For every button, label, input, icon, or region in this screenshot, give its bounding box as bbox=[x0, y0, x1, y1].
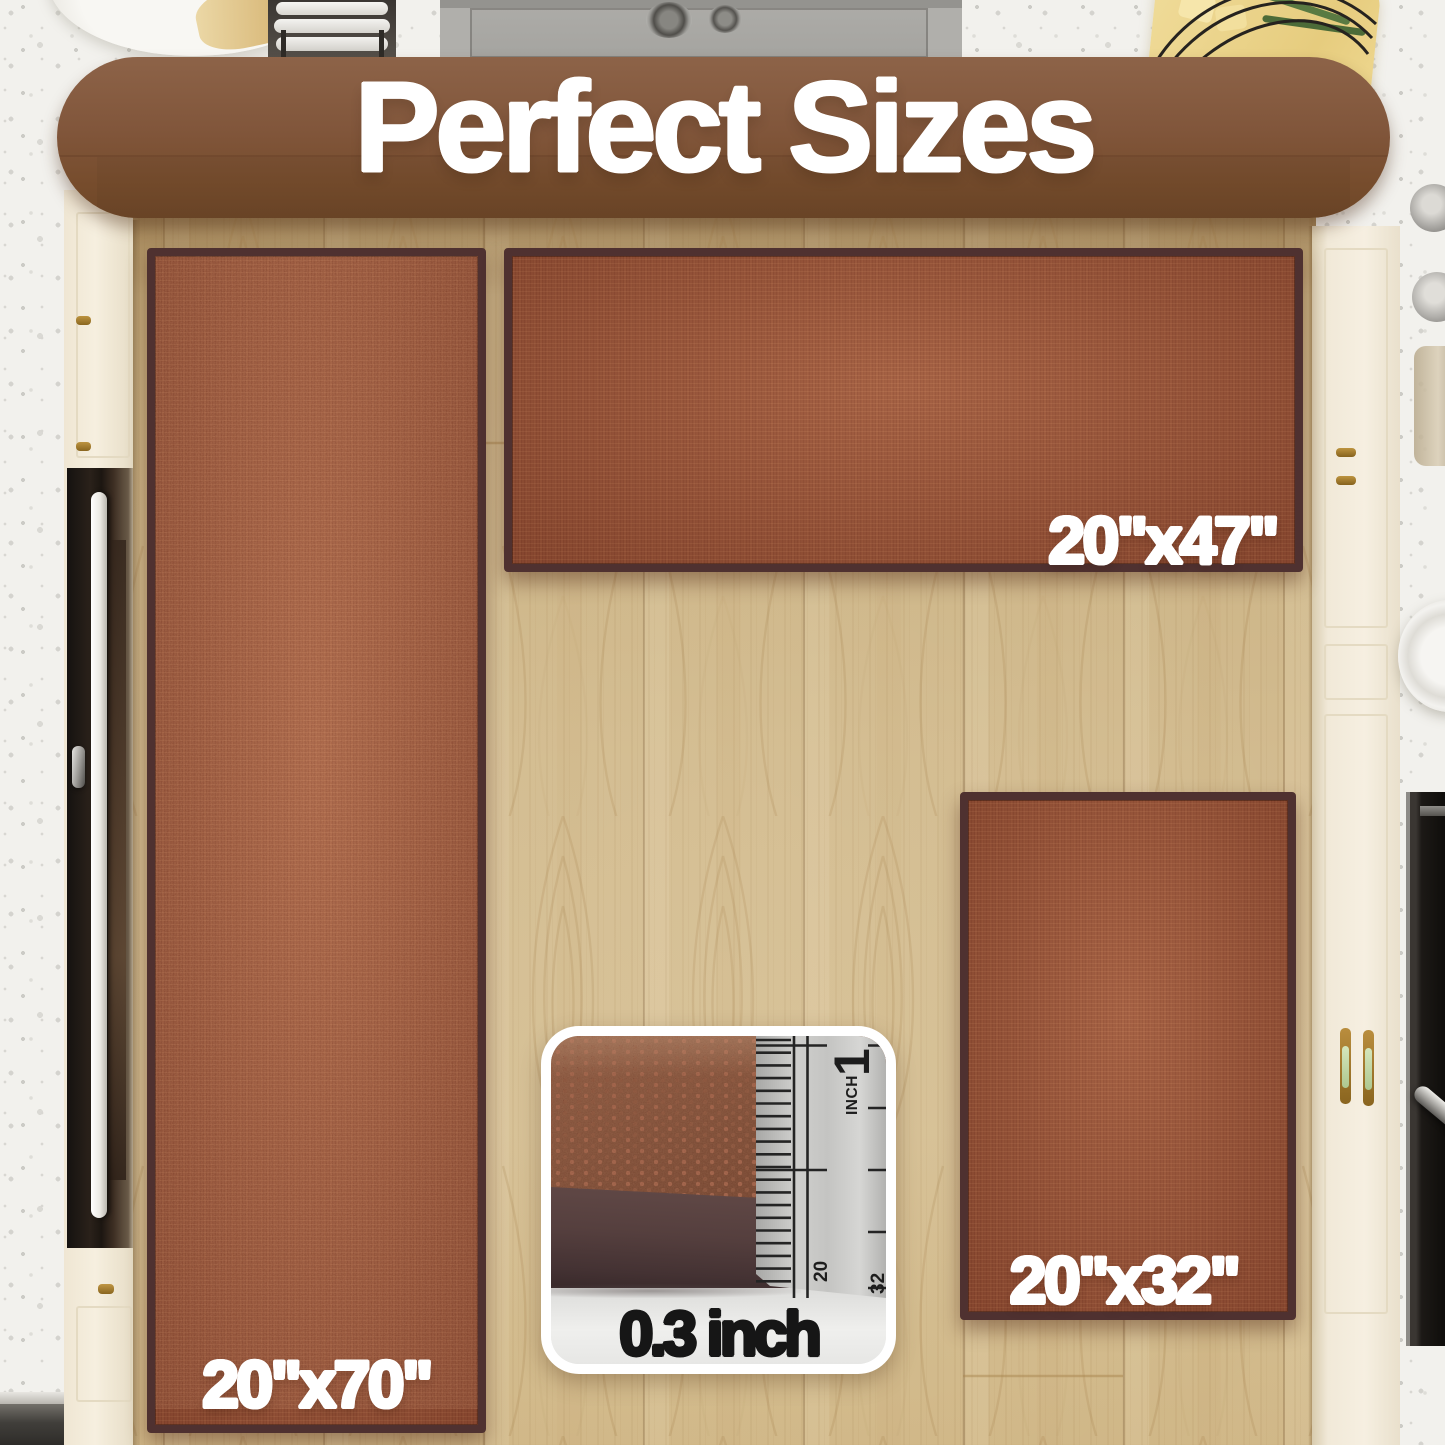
svg-text:INCH: INCH bbox=[844, 1075, 861, 1115]
svg-text:20: 20 bbox=[811, 1261, 832, 1282]
svg-text:32: 32 bbox=[868, 1273, 886, 1294]
svg-text:1: 1 bbox=[824, 1048, 880, 1076]
